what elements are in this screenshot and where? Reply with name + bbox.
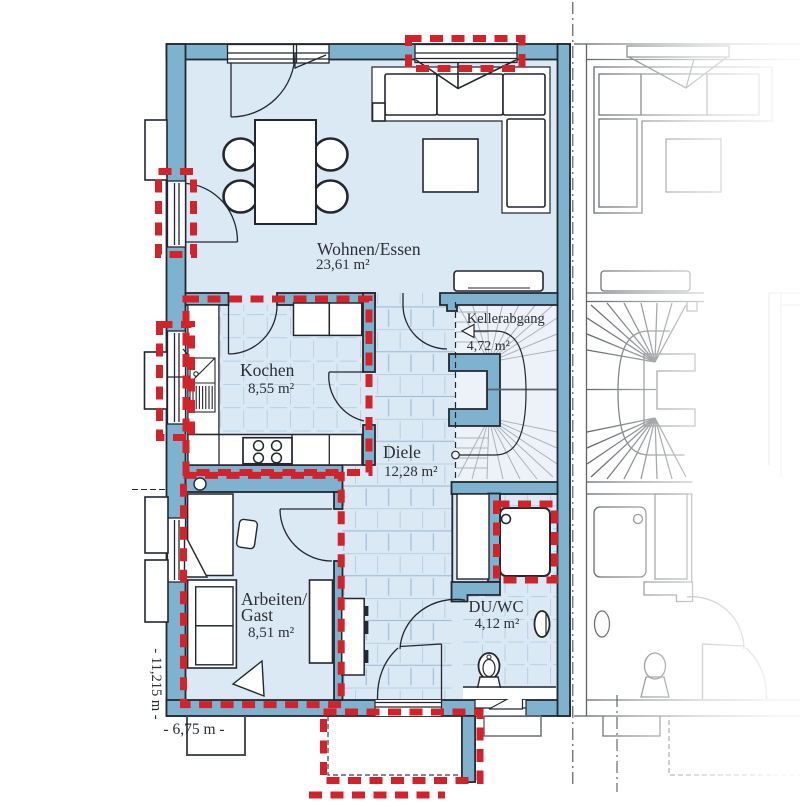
svg-text:8,55 m²: 8,55 m²	[248, 381, 295, 397]
svg-text:8,51 m²: 8,51 m²	[248, 625, 295, 641]
svg-text:DU/WC: DU/WC	[469, 597, 524, 616]
svg-text:4,12 m²: 4,12 m²	[475, 616, 520, 632]
svg-text:Wohnen/Essen: Wohnen/Essen	[317, 239, 421, 259]
svg-text:4,72 m²: 4,72 m²	[467, 339, 510, 354]
svg-text:23,61 m²: 23,61 m²	[316, 257, 370, 273]
svg-text:Kochen: Kochen	[240, 360, 295, 380]
svg-text:Diele: Diele	[383, 442, 421, 462]
svg-text:Kellerabgang: Kellerabgang	[467, 311, 545, 327]
svg-text:- 6,75 m -: - 6,75 m -	[163, 721, 224, 738]
svg-text:- 11,215 m -: - 11,215 m -	[148, 648, 164, 719]
svg-text:Gast: Gast	[241, 605, 273, 625]
svg-text:12,28 m²: 12,28 m²	[384, 464, 438, 480]
